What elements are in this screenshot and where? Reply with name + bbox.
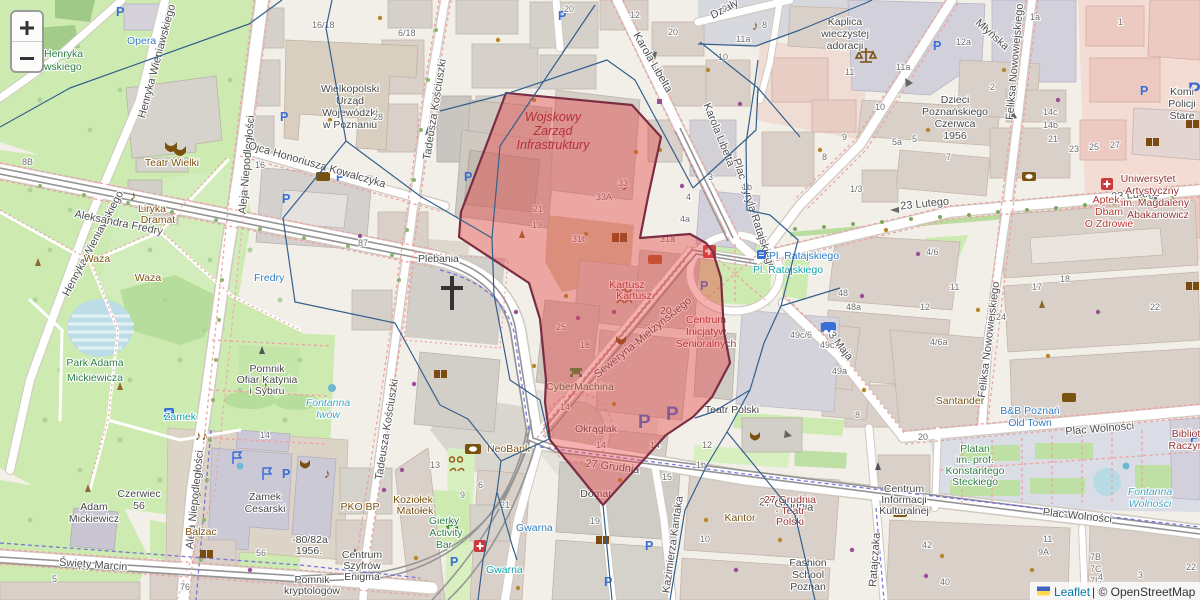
svg-text:40: 40 xyxy=(940,577,950,587)
svg-text:11: 11 xyxy=(950,282,959,292)
svg-text:12: 12 xyxy=(702,440,712,450)
svg-text:12: 12 xyxy=(920,302,930,312)
svg-text:20: 20 xyxy=(668,27,678,37)
svg-text:Uniwersytet: Uniwersytet xyxy=(1121,173,1176,185)
svg-text:1/3: 1/3 xyxy=(850,184,863,194)
svg-text:Wojskowy: Wojskowy xyxy=(525,110,582,124)
svg-text:Stare: Stare xyxy=(1169,110,1194,122)
svg-text:8: 8 xyxy=(762,20,767,30)
svg-text:Kantor: Kantor xyxy=(725,512,756,524)
svg-text:14: 14 xyxy=(260,430,270,440)
svg-text:Fontanna: Fontanna xyxy=(306,397,351,409)
svg-text:20: 20 xyxy=(918,432,928,442)
svg-text:8B: 8B xyxy=(22,157,33,167)
svg-text:Wolności: Wolności xyxy=(1129,498,1172,510)
svg-text:Adam: Adam xyxy=(80,501,108,513)
svg-text:10: 10 xyxy=(700,534,710,544)
svg-text:P: P xyxy=(282,467,290,481)
svg-text:16/18: 16/18 xyxy=(312,20,335,30)
svg-text:Gierky: Gierky xyxy=(429,515,460,527)
svg-text:16: 16 xyxy=(255,160,265,170)
svg-text:11: 11 xyxy=(845,67,854,77)
svg-text:22: 22 xyxy=(1150,302,1160,312)
svg-text:2: 2 xyxy=(990,82,995,92)
svg-text:adoracji: adoracji xyxy=(827,40,864,52)
svg-text:♪: ♪ xyxy=(130,188,137,203)
svg-text:Fashion: Fashion xyxy=(789,557,827,569)
svg-text:P: P xyxy=(645,539,653,553)
svg-text:9: 9 xyxy=(722,4,727,14)
svg-text:Gwarna: Gwarna xyxy=(516,522,553,534)
svg-text:49c: 49c xyxy=(820,340,835,350)
svg-text:8: 8 xyxy=(822,152,827,162)
svg-text:4/6a: 4/6a xyxy=(930,337,948,347)
svg-text:49c/6: 49c/6 xyxy=(790,330,812,340)
svg-text:5a: 5a xyxy=(892,137,902,147)
svg-text:PKO BP: PKO BP xyxy=(340,501,379,513)
svg-text:27: 27 xyxy=(1110,140,1120,150)
svg-text:awskiego: awskiego xyxy=(38,61,82,73)
svg-text:4a: 4a xyxy=(680,214,690,224)
svg-text:P: P xyxy=(464,170,472,184)
svg-text:56: 56 xyxy=(133,500,145,512)
svg-text:56: 56 xyxy=(256,548,266,558)
svg-text:23: 23 xyxy=(1069,144,1079,154)
svg-text:5: 5 xyxy=(912,134,917,144)
svg-text:Cesarski: Cesarski xyxy=(245,503,286,515)
svg-text:1956.: 1956. xyxy=(296,545,322,557)
svg-text:6: 6 xyxy=(478,480,483,490)
svg-text:♪: ♪ xyxy=(324,466,331,481)
svg-text:22: 22 xyxy=(1186,562,1196,572)
svg-text:Pl. Ratajskiego: Pl. Ratajskiego xyxy=(769,250,839,262)
svg-text:3: 3 xyxy=(1138,570,1143,580)
svg-text:Polski: Polski xyxy=(776,516,804,528)
svg-text:Waza: Waza xyxy=(84,253,111,265)
svg-text:12: 12 xyxy=(630,10,640,20)
svg-text:Kaplica: Kaplica xyxy=(828,16,863,28)
svg-text:13: 13 xyxy=(430,460,440,470)
svg-text:♪♪: ♪♪ xyxy=(195,428,208,443)
svg-text:9: 9 xyxy=(460,490,465,500)
svg-text:Steckiego: Steckiego xyxy=(952,476,998,488)
svg-text:Old Town: Old Town xyxy=(1008,417,1052,429)
svg-text:| © OpenStreetMap: | © OpenStreetMap xyxy=(1092,585,1196,599)
svg-text:24: 24 xyxy=(996,312,1006,322)
svg-text:w Poznaniu: w Poznaniu xyxy=(322,119,377,131)
svg-text:Poznańskiego: Poznańskiego xyxy=(922,106,988,118)
svg-text:kryptologów: kryptologów xyxy=(284,585,340,597)
svg-text:P: P xyxy=(933,39,941,53)
svg-text:Dbam: Dbam xyxy=(1095,206,1123,218)
svg-text:4: 4 xyxy=(686,192,691,202)
svg-text:♪: ♪ xyxy=(752,18,759,33)
svg-text:15: 15 xyxy=(662,472,672,482)
svg-text:Wojewódzki: Wojewódzki xyxy=(322,107,378,119)
svg-text:wieczystej: wieczystej xyxy=(820,28,869,40)
svg-text:Raczyń: Raczyń xyxy=(1168,440,1200,452)
svg-text:20: 20 xyxy=(564,4,574,14)
svg-text:14b: 14b xyxy=(1043,120,1058,130)
svg-text:14c: 14c xyxy=(1043,107,1058,117)
svg-text:P: P xyxy=(282,192,290,206)
svg-text:Activity: Activity xyxy=(429,527,463,539)
svg-text:9: 9 xyxy=(842,132,847,142)
svg-text:11: 11 xyxy=(1043,534,1052,544)
svg-text:P: P xyxy=(116,5,124,19)
svg-text:1956: 1956 xyxy=(943,130,967,142)
svg-text:Komi: Komi xyxy=(1170,86,1194,98)
svg-text:Santander: Santander xyxy=(936,395,985,407)
svg-text:25: 25 xyxy=(1089,142,1099,152)
svg-text:11a: 11a xyxy=(896,62,910,72)
svg-text:i Sybiru: i Sybiru xyxy=(249,385,284,397)
svg-text:Fredry: Fredry xyxy=(254,272,285,284)
svg-text:6/18: 6/18 xyxy=(398,28,416,38)
svg-text:10: 10 xyxy=(875,102,885,112)
svg-text:Balzac: Balzac xyxy=(185,526,217,538)
svg-text:1b: 1b xyxy=(696,460,706,470)
svg-text:Enigma: Enigma xyxy=(344,571,380,583)
svg-text:B&B Poznań: B&B Poznań xyxy=(1000,405,1060,417)
svg-text:4: 4 xyxy=(1098,572,1103,582)
svg-text:Bibliot: Bibliot xyxy=(1172,428,1200,440)
svg-text:Dzieci: Dzieci xyxy=(941,94,970,106)
svg-text:Czerwiec: Czerwiec xyxy=(117,488,160,500)
svg-text:48a: 48a xyxy=(846,302,861,312)
svg-text:Park Adama: Park Adama xyxy=(66,357,123,369)
svg-text:Gwarna: Gwarna xyxy=(486,564,523,576)
svg-text:7: 7 xyxy=(946,152,951,162)
svg-text:Mickiewicza: Mickiewicza xyxy=(67,372,123,384)
svg-text:Policji: Policji xyxy=(1168,98,1195,110)
svg-text:Dramat: Dramat xyxy=(141,214,176,226)
svg-text:Teatr Polski: Teatr Polski xyxy=(705,404,759,416)
svg-text:1a: 1a xyxy=(1030,12,1040,22)
svg-text:Fontanna: Fontanna xyxy=(1128,486,1173,498)
svg-text:19: 19 xyxy=(590,516,600,526)
svg-text:4/6: 4/6 xyxy=(926,247,939,257)
svg-text:Czerwca: Czerwca xyxy=(935,118,976,130)
svg-text:Kulturalnej: Kulturalnej xyxy=(879,505,929,517)
svg-text:P: P xyxy=(1140,84,1148,98)
svg-text:49a: 49a xyxy=(832,366,847,376)
svg-text:28: 28 xyxy=(373,112,383,122)
svg-text:NeoBank: NeoBank xyxy=(487,443,531,455)
svg-text:Wielkopolski: Wielkopolski xyxy=(321,83,379,95)
svg-text:Bar: Bar xyxy=(436,539,453,551)
svg-text:18: 18 xyxy=(1060,274,1070,284)
svg-text:P: P xyxy=(450,555,458,569)
svg-text:Waza: Waza xyxy=(135,272,162,284)
svg-text:12a: 12a xyxy=(956,37,971,47)
svg-text:17: 17 xyxy=(1032,282,1042,292)
svg-text:9A: 9A xyxy=(1038,547,1049,557)
svg-text:Poznan: Poznan xyxy=(790,581,826,593)
svg-text:Zamek: Zamek xyxy=(249,491,282,503)
svg-text:Mickiewicz: Mickiewicz xyxy=(69,513,119,525)
svg-text:im. Magdaleny: im. Magdaleny xyxy=(1121,197,1190,209)
svg-text:Opera: Opera xyxy=(127,35,156,47)
svg-text:87: 87 xyxy=(358,238,368,248)
svg-text:7B: 7B xyxy=(1090,552,1101,562)
svg-text:Infrastruktury: Infrastruktury xyxy=(517,138,591,152)
svg-text:48: 48 xyxy=(838,288,848,298)
svg-text:Plebania: Plebania xyxy=(418,253,459,265)
svg-text:42: 42 xyxy=(922,540,932,550)
svg-text:P: P xyxy=(280,110,288,124)
svg-text:Leaflet: Leaflet xyxy=(1054,585,1091,599)
svg-text:8: 8 xyxy=(855,410,860,420)
svg-text:76: 76 xyxy=(180,582,190,592)
svg-text:21: 21 xyxy=(1048,134,1058,144)
svg-text:Teatr Wielki: Teatr Wielki xyxy=(145,157,199,169)
svg-text:5: 5 xyxy=(52,574,57,584)
svg-text:Pl. Ratajskiego: Pl. Ratajskiego xyxy=(753,264,823,276)
svg-text:11a: 11a xyxy=(736,34,750,44)
svg-text:1: 1 xyxy=(1118,17,1123,27)
svg-text:Abakanowicz: Abakanowicz xyxy=(1127,209,1189,221)
svg-text:Zamek: Zamek xyxy=(164,411,197,423)
svg-text:Iwów: Iwów xyxy=(316,409,341,421)
svg-text:Henryka: Henryka xyxy=(44,48,83,60)
svg-text:Artystyczny: Artystyczny xyxy=(1125,185,1179,197)
svg-text:Zarząd: Zarząd xyxy=(533,124,574,138)
